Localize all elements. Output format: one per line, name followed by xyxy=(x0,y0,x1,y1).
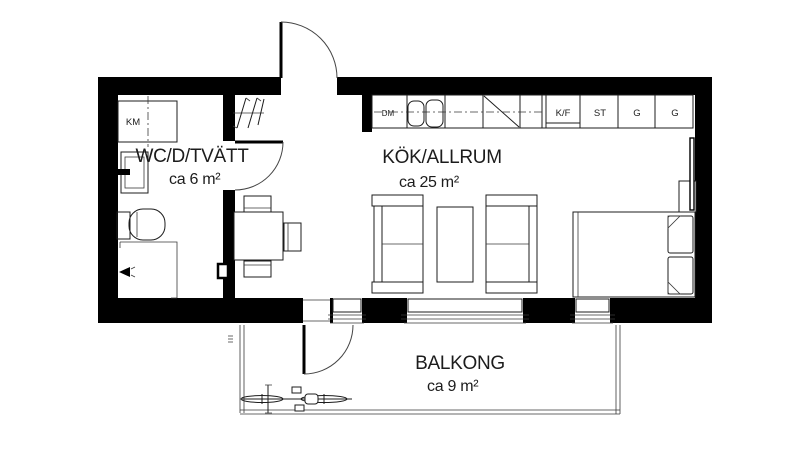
window-bedroom xyxy=(570,299,615,323)
bicycle-icon xyxy=(241,385,352,413)
kitchen-counter: DM K/F ST G G xyxy=(372,95,693,128)
floorplan-canvas: DM K/F ST G G KM xyxy=(0,0,810,455)
shower-icon xyxy=(119,242,177,298)
coffee-table xyxy=(437,207,473,282)
room-area-kitchen: ca 25 m² xyxy=(399,174,460,191)
tv-icon xyxy=(690,138,694,210)
wc-wall-lower xyxy=(223,190,235,298)
sofa-right xyxy=(486,195,537,293)
window-sidelight xyxy=(328,299,366,323)
window-living-room xyxy=(401,299,529,323)
entry-door xyxy=(281,22,337,78)
room-name-kitchen: KÖK/ALLRUM xyxy=(382,147,501,168)
washer-label: KM xyxy=(126,117,140,128)
stove-icon xyxy=(484,96,519,127)
wardrobe-1-label: G xyxy=(633,108,640,119)
room-name-wc: WC/D/TVÄTT xyxy=(135,146,249,167)
wall-left xyxy=(98,77,118,323)
wall-bottom-3 xyxy=(523,298,575,323)
wc-wall-upper xyxy=(223,95,235,141)
pillow-bottom xyxy=(668,257,693,294)
wall-right xyxy=(695,77,712,323)
balcony-door xyxy=(303,300,353,374)
wall-bottom-2 xyxy=(362,298,407,323)
wall-bottom-1 xyxy=(98,298,303,323)
room-area-balcony: ca 9 m² xyxy=(427,378,479,395)
fridge-freezer-label: K/F xyxy=(556,108,571,119)
wall-bottom-4 xyxy=(610,298,712,323)
room-name-balcony: BALKONG xyxy=(415,353,505,374)
cleaning-cabinet-label: ST xyxy=(594,108,606,119)
dining-table xyxy=(234,212,283,260)
wardrobe-2-label: G xyxy=(671,108,678,119)
sofa-left xyxy=(372,195,423,293)
washing-machine: KM xyxy=(118,96,177,147)
sink-icon xyxy=(408,100,443,127)
bed xyxy=(573,212,695,297)
section-marker xyxy=(228,336,233,342)
wall-top-left xyxy=(98,77,281,95)
toilet-icon xyxy=(117,209,165,240)
room-area-wc: ca 6 m² xyxy=(169,171,221,188)
coat-hooks-icon xyxy=(233,98,264,128)
pillow-top xyxy=(668,216,693,253)
floorplan-drawing: DM K/F ST G G KM xyxy=(0,0,810,455)
wall-top-right xyxy=(337,77,712,95)
shaft-box xyxy=(218,264,228,278)
dishwasher-label: DM xyxy=(382,109,395,118)
kitchen-wall-stub xyxy=(362,95,372,132)
